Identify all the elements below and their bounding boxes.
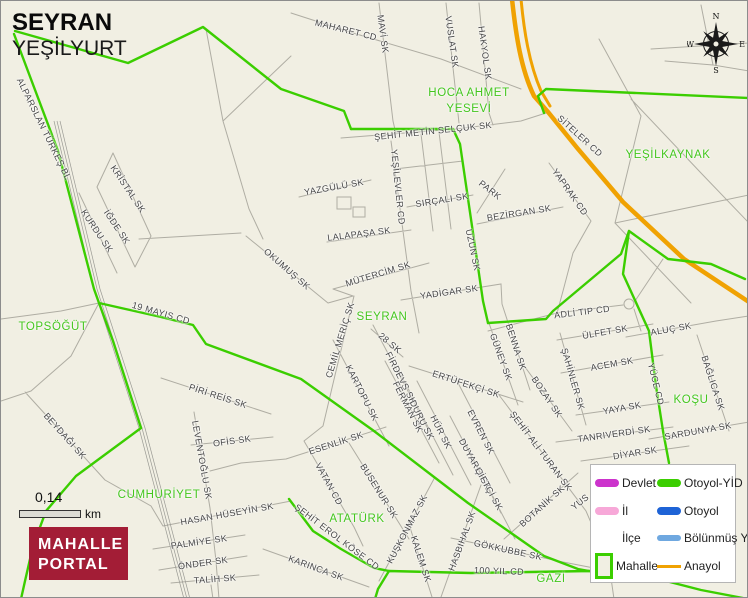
legend-left-column: DevletİlİlçeMahalle bbox=[595, 469, 657, 580]
map-viewport[interactable]: MAHARET CDMAVİ SKVUSLAT SKHAKYOL SKSİTEL… bbox=[0, 0, 748, 598]
svg-text:S: S bbox=[713, 66, 718, 73]
compass-rose-icon: N E S W bbox=[687, 11, 745, 73]
svg-text:N: N bbox=[713, 12, 720, 21]
legend-swatch-i-l-e bbox=[595, 534, 619, 542]
scale-bar: 0,14 km bbox=[19, 489, 129, 523]
scale-value: 0,14 bbox=[35, 489, 129, 505]
legend-swatch-mahalle bbox=[595, 553, 613, 579]
legend-row-i-l-e: İlçe bbox=[595, 525, 657, 553]
page-subtitle: YEŞİLYURT bbox=[12, 37, 127, 61]
legend: DevletİlİlçeMahalle Otoyol-YİDOtoyolBölü… bbox=[590, 464, 736, 583]
page-title: SEYRAN bbox=[12, 9, 127, 37]
mahalle-portal-logo: MAHALLE PORTAL bbox=[29, 527, 128, 580]
legend-row-otoyol: Otoyol bbox=[657, 497, 748, 525]
legend-label-b-l-nm-y: Bölünmüş Y bbox=[684, 531, 748, 545]
legend-row-devlet: Devlet bbox=[595, 469, 657, 497]
legend-swatch-b-l-nm-y bbox=[657, 535, 681, 541]
logo-line1: MAHALLE bbox=[38, 535, 128, 555]
legend-swatch-devlet bbox=[595, 479, 619, 487]
legend-label-i-l: İl bbox=[622, 504, 628, 518]
scale-unit: km bbox=[85, 507, 101, 521]
scale-bar-rect bbox=[19, 510, 81, 518]
legend-swatch-otoyol-yi-d bbox=[657, 479, 681, 487]
legend-right-column: Otoyol-YİDOtoyolBölünmüş YAnayol bbox=[657, 469, 748, 580]
svg-text:E: E bbox=[739, 40, 745, 49]
legend-row-b-l-nm-y: Bölünmüş Y bbox=[657, 525, 748, 553]
legend-label-anayol: Anayol bbox=[684, 559, 721, 573]
logo-line2: PORTAL bbox=[38, 555, 128, 575]
legend-row-mahalle: Mahalle bbox=[595, 552, 657, 580]
legend-label-devlet: Devlet bbox=[622, 476, 656, 490]
legend-row-anayol: Anayol bbox=[657, 552, 748, 580]
legend-label-i-l-e: İlçe bbox=[622, 531, 641, 545]
legend-swatch-otoyol bbox=[657, 507, 681, 515]
map-title-block: SEYRAN YEŞİLYURT bbox=[12, 9, 127, 61]
legend-label-otoyol-yi-d: Otoyol-YİD bbox=[684, 476, 743, 490]
legend-swatch-anayol bbox=[657, 565, 681, 568]
svg-text:W: W bbox=[687, 40, 695, 49]
legend-label-otoyol: Otoyol bbox=[684, 504, 719, 518]
legend-row-otoyol-yi-d: Otoyol-YİD bbox=[657, 469, 748, 497]
legend-swatch-i-l bbox=[595, 507, 619, 515]
legend-row-i-l: İl bbox=[595, 497, 657, 525]
legend-label-mahalle: Mahalle bbox=[616, 559, 658, 573]
